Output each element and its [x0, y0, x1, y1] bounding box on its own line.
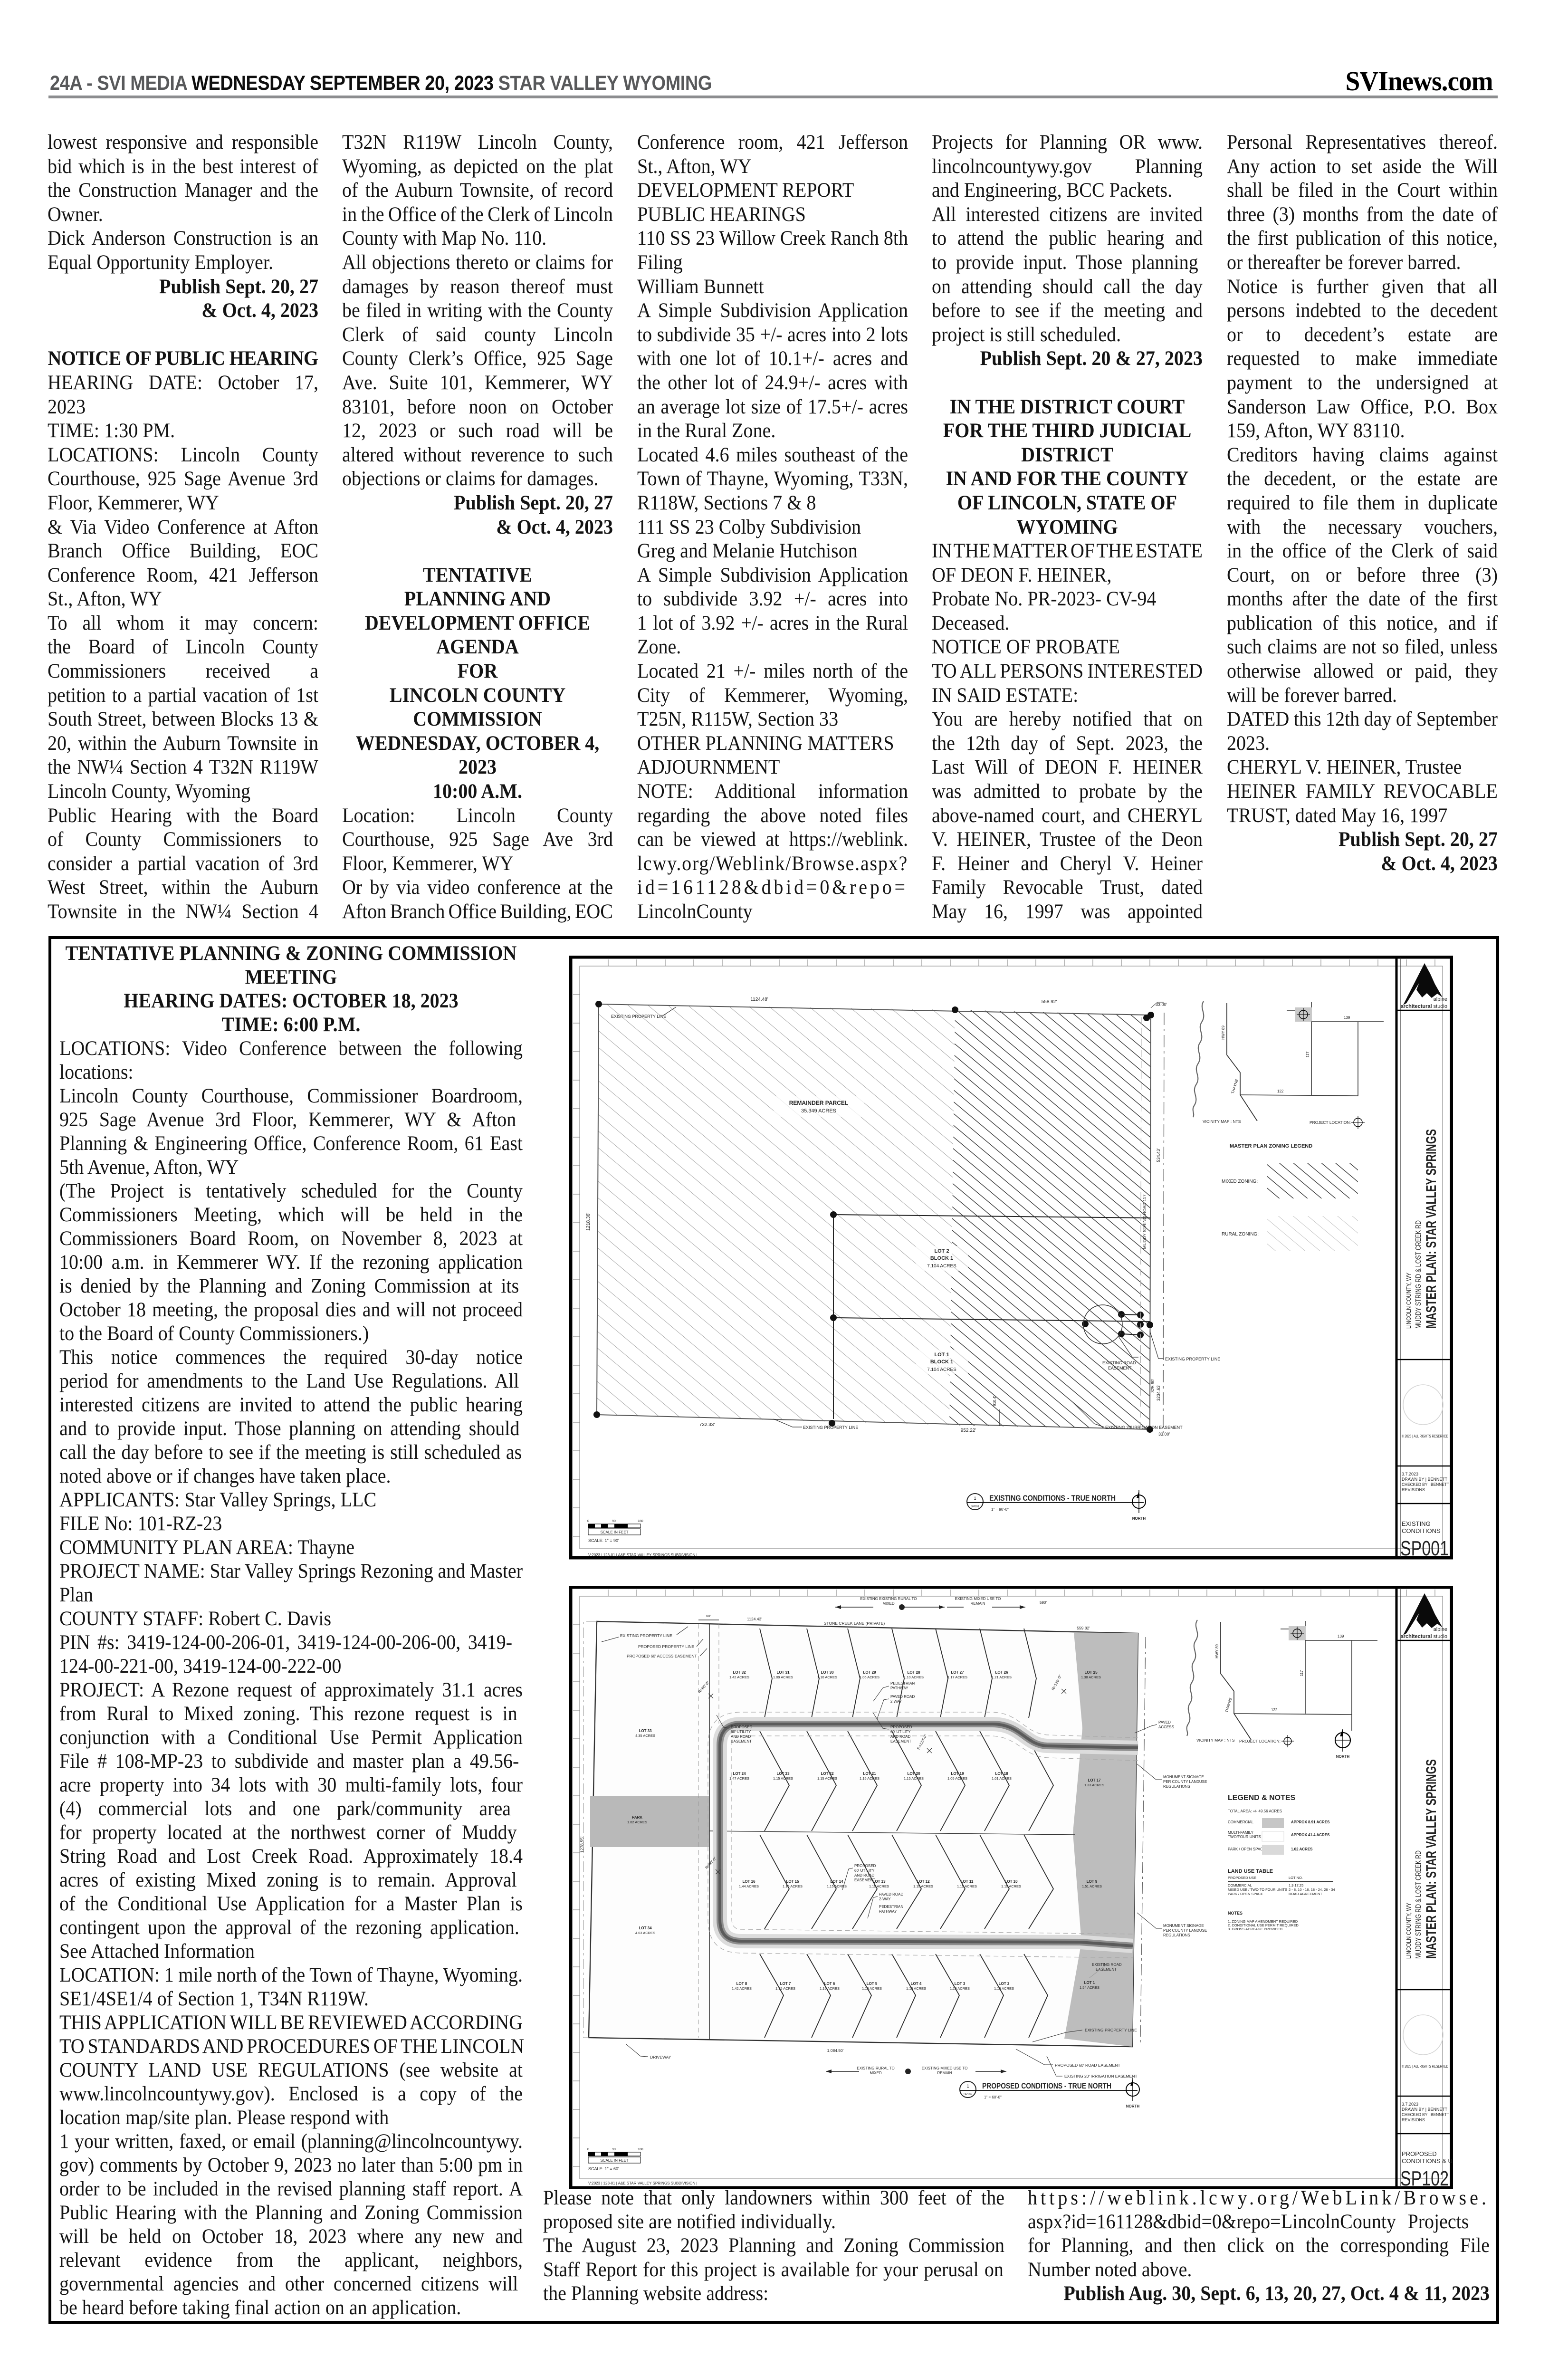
svg-text:PROJECT LOCATION:: PROJECT LOCATION:: [1239, 1739, 1281, 1744]
svg-text:117: 117: [1300, 1670, 1304, 1676]
svg-text:1.09 ACRES: 1.09 ACRES: [773, 1675, 793, 1679]
svg-text:LOT 5: LOT 5: [867, 1982, 878, 1986]
svg-text:PROPOSED: PROPOSED: [890, 1725, 912, 1729]
svg-text:REMAIN: REMAIN: [970, 1601, 985, 1606]
svg-text:LOT 16: LOT 16: [742, 1879, 755, 1884]
svg-text:1.15 ACRES: 1.15 ACRES: [906, 1986, 926, 1991]
svg-text:MASTER PLAN ZONING LEGEND: MASTER PLAN ZONING LEGEND: [1230, 1143, 1312, 1149]
svg-text:PARK / OPEN SPACE: PARK / OPEN SPACE: [1228, 1847, 1265, 1851]
svg-text:RURAL ZONING:: RURAL ZONING:: [1222, 1232, 1259, 1237]
svg-text:EXISTING: EXISTING: [1402, 1520, 1431, 1527]
svg-text:3234.63': 3234.63': [1156, 1385, 1161, 1401]
svg-text:1.15 ACRES: 1.15 ACRES: [957, 1884, 977, 1888]
svg-text:COMMERCIAL: COMMERCIAL: [1228, 1883, 1252, 1887]
svg-text:4.03 ACRES: 4.03 ACRES: [635, 1931, 655, 1935]
svg-text:PROPOSED: PROPOSED: [1402, 2150, 1437, 2157]
svg-text:MUDDY STRING RD & LOST CREEK R: MUDDY STRING RD & LOST CREEK RD: [1415, 1220, 1423, 1329]
svg-text:PEDESTRIAN: PEDESTRIAN: [890, 1681, 915, 1686]
svg-text:1.15 ACRES: 1.15 ACRES: [994, 1986, 1014, 1991]
svg-text:LEGEND & NOTES: LEGEND & NOTES: [1228, 1794, 1296, 1802]
svg-text:PATHWAY: PATHWAY: [890, 1686, 908, 1690]
svg-text:EXISTING PROPERTY LINE: EXISTING PROPERTY LINE: [1165, 1357, 1220, 1361]
svg-text:SCALE: 1" = 90': SCALE: 1" = 90': [588, 1538, 619, 1543]
svg-text:alpine: alpine: [1434, 996, 1447, 1002]
svg-text:ACCESS: ACCESS: [1158, 1725, 1174, 1729]
svg-text:0: 0: [587, 2148, 589, 2151]
svg-text:DRAWN BY | BENNETT: DRAWN BY | BENNETT: [1402, 2107, 1447, 2112]
svg-text:EXISTING CONDITIONS - TRUE NOR: EXISTING CONDITIONS - TRUE NORTH: [989, 1494, 1116, 1503]
svg-text:60': 60': [706, 1614, 711, 1618]
svg-text:MONUMENT SIGNAGE: MONUMENT SIGNAGE: [1163, 1775, 1204, 1779]
svg-text:1124.43': 1124.43': [747, 1617, 762, 1621]
svg-text:REVISIONS: REVISIONS: [1402, 2117, 1425, 2122]
svg-text:SP001: SP001: [971, 1505, 980, 1508]
svg-text:EXISTING RURAL TO: EXISTING RURAL TO: [857, 2066, 894, 2070]
svg-text:EASEMENT: EASEMENT: [890, 1739, 911, 1744]
svg-text:60' UTILITY: 60' UTILITY: [890, 1730, 911, 1734]
svg-text:1.38 ACRES: 1.38 ACRES: [1081, 1675, 1101, 1679]
svg-text:LINCOLN COUNTY, WY: LINCOLN COUNTY, WY: [1405, 1903, 1412, 1959]
svg-text:REMAIN: REMAIN: [937, 2071, 952, 2075]
svg-text:LOT 20: LOT 20: [907, 1772, 920, 1776]
svg-text:V:2023 | 123-01 | A&E STAR VAL: V:2023 | 123-01 | A&E STAR VALLEY SPRING…: [588, 1553, 698, 1557]
svg-text:2 WAY: 2 WAY: [890, 1699, 902, 1704]
svg-text:LOT 21: LOT 21: [863, 1772, 876, 1776]
svg-text:1" = 90'-0": 1" = 90'-0": [991, 1507, 1009, 1512]
svg-text:EXISTING ROAD: EXISTING ROAD: [1092, 1963, 1122, 1967]
svg-text:EASEMENT: EASEMENT: [854, 1878, 875, 1882]
svg-text:732.33': 732.33': [699, 1422, 715, 1428]
svg-text:590': 590': [1040, 1600, 1047, 1605]
svg-text:LOT 24: LOT 24: [733, 1772, 746, 1776]
svg-text:PROPOSED USE: PROPOSED USE: [1228, 1876, 1256, 1880]
svg-text:architectural studio: architectural studio: [1401, 1004, 1447, 1009]
svg-text:LOT 27: LOT 27: [951, 1670, 964, 1675]
svg-text:LOT 2: LOT 2: [934, 1248, 949, 1254]
svg-text:EXISTING EXISTING RURAL TO: EXISTING EXISTING RURAL TO: [860, 1597, 917, 1601]
svg-text:3.7.2023: 3.7.2023: [1402, 1472, 1418, 1476]
svg-text:VICINITY MAP : NTS: VICINITY MAP : NTS: [1196, 1738, 1235, 1743]
svg-text:architectural studio: architectural studio: [1401, 1634, 1447, 1639]
svg-text:117: 117: [1306, 1051, 1310, 1057]
svg-text:MASTER PLAN: STAR VALLEY SPRIN: MASTER PLAN: STAR VALLEY SPRINGS: [1424, 1129, 1439, 1329]
svg-text:PAVED ROAD: PAVED ROAD: [879, 1892, 903, 1897]
svg-text:MUDDY STRING ROAD 117: MUDDY STRING ROAD 117: [1142, 1195, 1147, 1249]
svg-text:1.15 ACRES: 1.15 ACRES: [904, 1776, 924, 1781]
svg-text:7.104 ACRES: 7.104 ACRES: [927, 1367, 956, 1372]
svg-text:90: 90: [612, 1520, 616, 1523]
svg-text:1" = 60'-0": 1" = 60'-0": [984, 2095, 1002, 2099]
svg-text:910.4': 910.4': [993, 1396, 997, 1406]
svg-text:1.17 ACRES: 1.17 ACRES: [947, 1675, 967, 1679]
svg-text:STONE CREEK LANE (PRIVATE): STONE CREEK LANE (PRIVATE): [824, 1621, 885, 1626]
svg-text:HWY 89: HWY 89: [1215, 1644, 1219, 1658]
svg-text:LOT 30: LOT 30: [821, 1670, 834, 1675]
svg-text:LOT 26: LOT 26: [995, 1670, 1008, 1675]
svg-text:LOT 15: LOT 15: [786, 1879, 799, 1884]
svg-text:LOT 6: LOT 6: [824, 1982, 835, 1986]
svg-text:HWY 89: HWY 89: [1221, 1025, 1225, 1040]
svg-text:PROPOSED 60' ACCESS EASEMENT: PROPOSED 60' ACCESS EASEMENT: [627, 1654, 697, 1658]
svg-text:LOT 3: LOT 3: [955, 1982, 966, 1986]
svg-text:3. GROSS ACREAGE PROVIDED: 3. GROSS ACREAGE PROVIDED: [1228, 1927, 1283, 1931]
svg-text:© 2023 | ALL RIGHTS RESERVED: © 2023 | ALL RIGHTS RESERVED: [1402, 1434, 1448, 1438]
svg-text:© 2023 | ALL RIGHTS RESERVED: © 2023 | ALL RIGHTS RESERVED: [1402, 2064, 1448, 2069]
svg-text:1.15 ACRES: 1.15 ACRES: [817, 1776, 837, 1781]
svg-text:LOT 7: LOT 7: [780, 1982, 791, 1986]
svg-text:CHECKED BY | BENNETT: CHECKED BY | BENNETT: [1402, 1482, 1449, 1487]
svg-text:LOT 28: LOT 28: [907, 1670, 920, 1675]
svg-text:1.15 ACRES: 1.15 ACRES: [773, 1776, 793, 1781]
svg-text:LOT 12: LOT 12: [917, 1879, 930, 1884]
svg-text:VICINITY MAP : NTS: VICINITY MAP : NTS: [1203, 1119, 1241, 1124]
svg-text:35.349 ACRES: 35.349 ACRES: [801, 1108, 836, 1114]
svg-text:1.44 ACRES: 1.44 ACRES: [739, 1884, 759, 1888]
svg-text:1.06 ACRES: 1.06 ACRES: [860, 1675, 880, 1679]
svg-text:559.82': 559.82': [1077, 1626, 1090, 1630]
svg-text:139: 139: [1338, 1634, 1344, 1638]
svg-text:EXISTING PROPERTY LINE: EXISTING PROPERTY LINE: [1085, 2028, 1137, 2032]
svg-text:SCALE IN FEET: SCALE IN FEET: [600, 1530, 628, 1534]
svg-text:LOT 32: LOT 32: [733, 1670, 746, 1675]
svg-text:PER COUNTY LANDUSE: PER COUNTY LANDUSE: [1163, 1928, 1207, 1933]
svg-text:1.02 ACRES: 1.02 ACRES: [627, 1820, 647, 1824]
svg-text:LAND USE TABLE: LAND USE TABLE: [1228, 1868, 1273, 1874]
svg-text:1.15 ACRES: 1.15 ACRES: [1001, 1884, 1021, 1888]
svg-text:1.15 ACRES: 1.15 ACRES: [820, 1986, 840, 1991]
svg-text:LINCOLN COUNTY, WY: LINCOLN COUNTY, WY: [1405, 1273, 1412, 1329]
svg-text:EXISTING PROPERTY LINE: EXISTING PROPERTY LINE: [620, 1633, 672, 1638]
svg-text:PAVED ROAD: PAVED ROAD: [890, 1695, 915, 1699]
svg-text:1.05 ACRES: 1.05 ACRES: [947, 1776, 967, 1781]
svg-text:325.60': 325.60': [1150, 1379, 1155, 1393]
svg-text:PARK: PARK: [632, 1815, 642, 1820]
svg-text:PROPOSED CONDITIONS - TRUE NOR: PROPOSED CONDITIONS - TRUE NORTH: [982, 2081, 1111, 2090]
svg-text:NORTH: NORTH: [1336, 1754, 1350, 1759]
svg-text:BLOCK 1: BLOCK 1: [930, 1359, 953, 1365]
svg-text:LOT 11: LOT 11: [961, 1879, 974, 1884]
svg-text:EXISTING 20' IRRIGATION EASEME: EXISTING 20' IRRIGATION EASEMENT: [1064, 2074, 1138, 2079]
svg-text:EASEMENT: EASEMENT: [1096, 1967, 1117, 1972]
svg-text:REMAINDER PARCEL: REMAINDER PARCEL: [789, 1100, 848, 1106]
svg-text:1.42 ACRES: 1.42 ACRES: [729, 1675, 749, 1679]
svg-text:MIXED: MIXED: [882, 1601, 895, 1606]
svg-text:180: 180: [638, 2148, 643, 2151]
svg-text:V:2023 | 123-01 | A&E STAR VAL: V:2023 | 123-01 | A&E STAR VALLEY SPRING…: [588, 2181, 698, 2185]
svg-text:APPROX 8.91 ACRES: APPROX 8.91 ACRES: [1291, 1820, 1330, 1824]
svg-text:1.42 ACRES: 1.42 ACRES: [732, 1986, 752, 1991]
svg-text:ROAD AGREEMENT: ROAD AGREEMENT: [1289, 1892, 1322, 1896]
svg-text:122: 122: [1271, 1708, 1278, 1712]
svg-text:1.15 ACRES: 1.15 ACRES: [950, 1986, 970, 1991]
svg-text:LOT 9: LOT 9: [1087, 1879, 1098, 1884]
svg-text:LOT 19: LOT 19: [951, 1772, 964, 1776]
svg-text:33.00': 33.00': [1156, 1002, 1167, 1007]
svg-text:DRIVEWAY: DRIVEWAY: [650, 2055, 671, 2060]
svg-text:NOTES: NOTES: [1228, 1911, 1243, 1916]
svg-text:PROJECT LOCATION:: PROJECT LOCATION:: [1310, 1120, 1351, 1125]
svg-text:1.01 ACRES: 1.01 ACRES: [992, 1776, 1012, 1781]
svg-text:LOT 22: LOT 22: [821, 1772, 834, 1776]
svg-text:LOT 1: LOT 1: [1084, 1981, 1095, 1985]
svg-text:CONDITIONS & USE: CONDITIONS & USE: [1402, 2157, 1453, 2165]
svg-text:1124.48': 1124.48': [750, 997, 768, 1002]
svg-text:MUDDY STRING RD & LOST CREEK R: MUDDY STRING RD & LOST CREEK RD: [1415, 1850, 1423, 1959]
svg-text:MIXED ZONING:: MIXED ZONING:: [1222, 1179, 1258, 1184]
svg-text:90: 90: [612, 2148, 616, 2151]
svg-text:0: 0: [587, 1520, 589, 1523]
svg-text:PARK / OPEN SPACE: PARK / OPEN SPACE: [1228, 1892, 1263, 1896]
svg-text:LOT 1: LOT 1: [934, 1352, 949, 1358]
svg-text:1,9,17,25: 1,9,17,25: [1289, 1883, 1303, 1887]
svg-text:EASEMENT: EASEMENT: [731, 1739, 752, 1744]
svg-text:SP102: SP102: [1400, 2167, 1449, 2189]
svg-text:NORTH: NORTH: [1126, 2104, 1140, 2108]
svg-text:EXISTING PROPERTY LINE: EXISTING PROPERTY LINE: [803, 1425, 858, 1430]
svg-text:1.15 ACRES: 1.15 ACRES: [869, 1884, 889, 1888]
svg-text:1.51 ACRES: 1.51 ACRES: [1082, 1884, 1102, 1888]
svg-text:EXISTING ROAD: EXISTING ROAD: [1102, 1360, 1136, 1365]
svg-text:LOT 14: LOT 14: [830, 1879, 843, 1884]
svg-text:AND ROAD: AND ROAD: [854, 1873, 874, 1878]
svg-text:DRAWN BY | BENNETT: DRAWN BY | BENNETT: [1402, 1477, 1447, 1482]
svg-text:LOT 29: LOT 29: [863, 1670, 876, 1675]
svg-text:1.10 ACRES: 1.10 ACRES: [904, 1675, 924, 1679]
svg-text:THAYNE: THAYNE: [1231, 1079, 1239, 1094]
svg-text:LOT NO.: LOT NO.: [1289, 1876, 1303, 1880]
svg-text:MIXED: MIXED: [870, 2071, 882, 2075]
svg-text:1.02 ACRES: 1.02 ACRES: [1291, 1847, 1313, 1851]
svg-text:TWO/FOUR UNITS: TWO/FOUR UNITS: [1228, 1835, 1261, 1839]
svg-text:60' UTILITY: 60' UTILITY: [731, 1730, 751, 1734]
svg-text:CHECKED BY | BENNETT: CHECKED BY | BENNETT: [1402, 2112, 1449, 2117]
svg-text:EXISTING 20' IRRIGATION EASEME: EXISTING 20' IRRIGATION EASEMENT: [1105, 1425, 1183, 1430]
svg-text:1278.55': 1278.55': [580, 1837, 584, 1853]
svg-text:1.15 ACRES: 1.15 ACRES: [862, 1986, 882, 1991]
svg-text:1.10 ACRES: 1.10 ACRES: [817, 1675, 837, 1679]
svg-text:MONUMENT SIGNAGE: MONUMENT SIGNAGE: [1163, 1924, 1204, 1928]
svg-text:2 - 8, 10 - 16, 18 - 24, 26 -: 2 - 8, 10 - 16, 18 - 24, 26 - 34: [1289, 1887, 1335, 1892]
svg-text:1.15 ACRES: 1.15 ACRES: [783, 1884, 803, 1888]
svg-text:alpine: alpine: [1434, 1627, 1447, 1632]
svg-text:60' UTILITY: 60' UTILITY: [854, 1868, 875, 1873]
svg-text:EXISTING MIXED USE TO: EXISTING MIXED USE TO: [955, 1597, 1001, 1601]
svg-text:MASTER PLAN: STAR VALLEY SPRIN: MASTER PLAN: STAR VALLEY SPRINGS: [1424, 1759, 1439, 1959]
svg-text:1: 1: [966, 2084, 969, 2089]
svg-text:LOT 33: LOT 33: [639, 1729, 652, 1733]
svg-text:PER COUNTY LANDUSE: PER COUNTY LANDUSE: [1163, 1780, 1207, 1784]
svg-text:PEDESTRIAN: PEDESTRIAN: [879, 1905, 903, 1909]
svg-text:1.15 ACRES: 1.15 ACRES: [775, 1986, 795, 1991]
svg-text:REVISIONS: REVISIONS: [1402, 1487, 1425, 1492]
svg-text:EXISTING MIXED USE TO: EXISTING MIXED USE TO: [922, 2066, 968, 2070]
svg-text:AND ROAD: AND ROAD: [890, 1734, 910, 1739]
svg-text:952.22': 952.22': [961, 1428, 976, 1433]
svg-text:534.43': 534.43': [1156, 1148, 1161, 1162]
svg-text:THAYNE: THAYNE: [1224, 1697, 1233, 1713]
svg-text:4.35 ACRES: 4.35 ACRES: [635, 1734, 655, 1738]
svg-text:SP102: SP102: [964, 2093, 973, 2096]
svg-text:PROPOSED: PROPOSED: [854, 1864, 876, 1868]
svg-text:LOT 2: LOT 2: [999, 1982, 1010, 1986]
svg-text:180: 180: [638, 1520, 643, 1523]
svg-text:LOT 34: LOT 34: [639, 1926, 652, 1930]
svg-text:PAVED: PAVED: [1158, 1720, 1171, 1725]
svg-text:TOTAL AREA: +/- 49.56 ACRES: TOTAL AREA: +/- 49.56 ACRES: [1228, 1809, 1282, 1813]
svg-text:EXISTING PROPERTY LINE: EXISTING PROPERTY LINE: [611, 1014, 666, 1019]
svg-text:LOT 17: LOT 17: [1088, 1778, 1101, 1782]
svg-text:SCALE IN FEET: SCALE IN FEET: [600, 2158, 628, 2163]
svg-text:APPROX 41.4 ACRES: APPROX 41.4 ACRES: [1291, 1833, 1330, 1837]
svg-text:33.00': 33.00': [1158, 1432, 1170, 1437]
svg-text:COMMERCIAL: COMMERCIAL: [1228, 1820, 1254, 1824]
svg-text:LOT 18: LOT 18: [995, 1772, 1008, 1776]
svg-text:LOT 10: LOT 10: [1004, 1879, 1018, 1884]
svg-text:LOT 25: LOT 25: [1084, 1670, 1098, 1675]
svg-text:1.15 ACRES: 1.15 ACRES: [913, 1884, 933, 1888]
svg-text:1.21 ACRES: 1.21 ACRES: [992, 1675, 1012, 1679]
svg-text:PROPOSED 60' ROAD EASEMENT: PROPOSED 60' ROAD EASEMENT: [1055, 2063, 1120, 2068]
svg-text:1218.36': 1218.36': [586, 1213, 591, 1231]
svg-text:BLOCK 1: BLOCK 1: [930, 1255, 953, 1261]
svg-text:1.33 ACRES: 1.33 ACRES: [1084, 1783, 1104, 1787]
svg-text:EASEMENT: EASEMENT: [1108, 1366, 1132, 1370]
svg-text:122: 122: [1277, 1089, 1284, 1093]
svg-text:AND ROAD: AND ROAD: [731, 1734, 751, 1739]
svg-text:PATHWAY: PATHWAY: [879, 1909, 897, 1914]
svg-text:CONDITIONS: CONDITIONS: [1402, 1527, 1441, 1534]
svg-text:LOT 8: LOT 8: [736, 1982, 747, 1986]
svg-text:SP001: SP001: [1400, 1537, 1449, 1560]
svg-text:2-WAY: 2-WAY: [879, 1897, 891, 1901]
svg-text:LOT 23: LOT 23: [776, 1772, 790, 1776]
svg-text:MULTI-FAMILY: MULTI-FAMILY: [1228, 1830, 1254, 1835]
svg-text:REGULATIONS: REGULATIONS: [1163, 1933, 1190, 1937]
svg-text:LOT 31: LOT 31: [776, 1670, 790, 1675]
svg-text:PROPOSED PROPERTY LINE: PROPOSED PROPERTY LINE: [638, 1644, 695, 1649]
svg-text:1.54 ACRES: 1.54 ACRES: [1080, 1985, 1100, 1990]
svg-text:MIXED USE / TWO TO FOUR UNITS: MIXED USE / TWO TO FOUR UNITS: [1228, 1887, 1287, 1892]
svg-text:PROPOSED: PROPOSED: [731, 1725, 753, 1729]
svg-text:558.92': 558.92': [1042, 999, 1057, 1005]
svg-text:1,084.50': 1,084.50': [827, 2048, 844, 2053]
svg-text:3.7.2023: 3.7.2023: [1402, 2102, 1418, 2107]
svg-text:7.104 ACRES: 7.104 ACRES: [927, 1264, 956, 1269]
svg-text:REGULATIONS: REGULATIONS: [1163, 1784, 1190, 1789]
svg-text:1.15 ACRES: 1.15 ACRES: [860, 1776, 880, 1781]
svg-text:139: 139: [1344, 1016, 1350, 1020]
svg-text:SCALE: 1" = 60': SCALE: 1" = 60': [588, 2166, 619, 2171]
svg-text:1: 1: [974, 1496, 976, 1501]
svg-text:NORTH: NORTH: [1132, 1516, 1146, 1521]
svg-text:LOT 4: LOT 4: [911, 1982, 922, 1986]
svg-text:1.47 ACRES: 1.47 ACRES: [729, 1776, 749, 1781]
